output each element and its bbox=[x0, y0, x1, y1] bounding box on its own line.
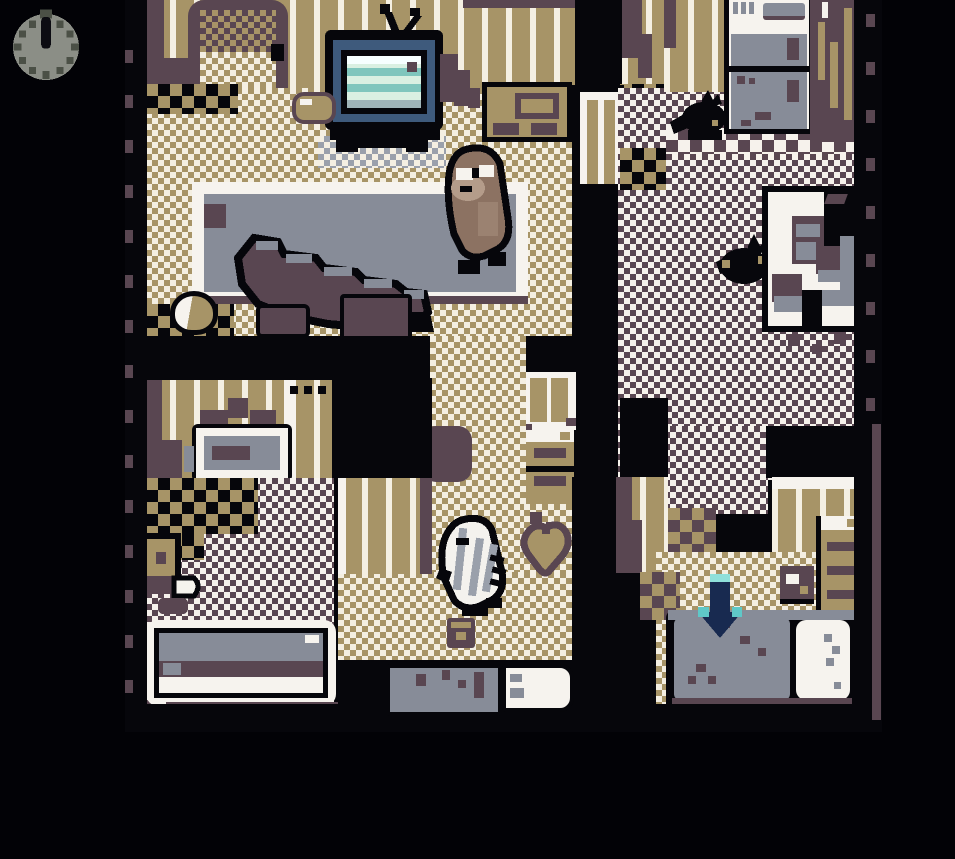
table-item-dark bbox=[802, 290, 822, 326]
right-wall bbox=[854, 0, 882, 732]
clock-indicator-icon bbox=[10, 8, 82, 86]
mat-dab bbox=[510, 688, 524, 698]
heart-cushion bbox=[520, 520, 572, 580]
drawer-handle bbox=[493, 123, 519, 135]
wall-hook-icon bbox=[318, 386, 326, 394]
radio-stripe bbox=[451, 622, 471, 628]
doormat-white bbox=[502, 664, 574, 712]
arrow-marker-icon bbox=[696, 574, 744, 640]
debris bbox=[340, 294, 412, 340]
doorframe-panel bbox=[587, 100, 598, 184]
floor-transition bbox=[146, 84, 238, 114]
fridge-smudge bbox=[749, 78, 755, 84]
book-band bbox=[796, 242, 816, 260]
divider-doorframe bbox=[580, 92, 620, 184]
fridge[interactable] bbox=[724, 0, 814, 134]
black-cat-1[interactable] bbox=[668, 88, 734, 142]
sideboard-panel bbox=[515, 93, 559, 119]
hall-drawers[interactable] bbox=[526, 430, 574, 504]
right-wall-trim bbox=[872, 424, 881, 720]
bed-pillow bbox=[796, 620, 850, 700]
floor-transition bbox=[668, 508, 716, 558]
fridge-top-handle bbox=[763, 3, 805, 20]
fridge-vent bbox=[741, 2, 746, 14]
npc-creature[interactable] bbox=[432, 142, 518, 284]
tub-gleam bbox=[305, 635, 319, 643]
wall-face-shade bbox=[630, 520, 642, 573]
floor-cushion bbox=[292, 92, 336, 124]
window-pane bbox=[530, 378, 547, 422]
mat-dab bbox=[442, 670, 450, 680]
pillow-dot bbox=[826, 658, 834, 666]
wall-stub bbox=[766, 426, 858, 478]
wall-stub bbox=[620, 398, 668, 478]
cushion-highlight bbox=[300, 99, 312, 105]
window-pane bbox=[551, 378, 568, 422]
floor-radio bbox=[447, 618, 475, 648]
door-knob-icon bbox=[271, 44, 284, 61]
hall-window-panel bbox=[524, 372, 576, 430]
floor-dab bbox=[788, 334, 800, 346]
radio-stripe bbox=[456, 632, 466, 640]
box-detail bbox=[786, 574, 799, 584]
wall-shading bbox=[162, 440, 182, 480]
wall-shading-right bbox=[810, 0, 856, 142]
wall-stripe bbox=[822, 2, 828, 18]
wall-stripe bbox=[844, 8, 852, 120]
blanket-dab bbox=[696, 664, 706, 672]
wall-hook-icon bbox=[290, 386, 298, 394]
pillow-dot bbox=[834, 682, 841, 689]
mat-dab bbox=[416, 674, 426, 686]
tub-dab bbox=[163, 663, 181, 675]
pillow-dot bbox=[832, 646, 840, 654]
doorframe-panel bbox=[604, 100, 615, 184]
blanket-dab bbox=[708, 676, 716, 684]
pillow-dot bbox=[824, 634, 832, 642]
wall-stripe bbox=[830, 42, 838, 108]
fridge-vent bbox=[749, 2, 754, 14]
drawer-handle bbox=[534, 476, 566, 486]
fridge-handle bbox=[787, 80, 799, 102]
wall-stripe bbox=[818, 22, 825, 80]
fridge-smudge bbox=[741, 120, 751, 126]
kitchen-table[interactable] bbox=[762, 186, 864, 332]
box-detail bbox=[800, 586, 808, 594]
wall-shading bbox=[664, 0, 676, 48]
sink-vanity[interactable] bbox=[192, 424, 292, 482]
wall-column bbox=[332, 378, 432, 480]
wall-hook-icon bbox=[304, 386, 312, 394]
fridge-handle bbox=[787, 38, 799, 60]
bathtub[interactable] bbox=[146, 620, 336, 706]
mat-dab bbox=[474, 672, 484, 698]
mat-dab bbox=[510, 674, 522, 682]
wall-dab bbox=[407, 62, 417, 72]
drawers-top-dab bbox=[560, 432, 570, 440]
floor-transition bbox=[620, 148, 666, 190]
wall-shading bbox=[638, 34, 652, 78]
tub-water bbox=[159, 633, 323, 661]
blanket-dab bbox=[758, 648, 766, 656]
wall-shading bbox=[463, 0, 576, 8]
drawer-handle bbox=[531, 123, 557, 135]
wall-face-top bbox=[772, 477, 858, 489]
left-wall bbox=[125, 0, 147, 732]
wall-face bbox=[338, 478, 432, 574]
drawer-gap bbox=[526, 466, 574, 472]
player-creature[interactable] bbox=[428, 512, 516, 624]
floor-dab bbox=[812, 344, 822, 354]
left-wall-notches bbox=[125, 50, 133, 720]
doormat-gray bbox=[386, 664, 502, 716]
floor-pot bbox=[170, 291, 218, 335]
fridge-smudge bbox=[737, 76, 745, 84]
front-door[interactable] bbox=[200, 10, 276, 52]
vanity-side bbox=[184, 446, 194, 472]
table-item bbox=[824, 194, 848, 204]
right-wall-notches bbox=[866, 14, 875, 424]
wall-divider-top bbox=[575, 0, 625, 90]
wall-band bbox=[146, 336, 430, 382]
wall-face-frame bbox=[338, 478, 346, 574]
fridge-smudge bbox=[755, 112, 771, 120]
sideboard[interactable] bbox=[482, 82, 572, 142]
book-band bbox=[796, 224, 820, 237]
floor-dab bbox=[834, 332, 846, 344]
tv-wall-shadow bbox=[468, 88, 480, 108]
faucet-icon bbox=[228, 398, 248, 418]
toilet[interactable] bbox=[140, 528, 210, 620]
drawer-handle bbox=[534, 448, 566, 458]
sink-drain bbox=[212, 446, 250, 460]
table-shadow bbox=[204, 204, 226, 228]
corner-dab bbox=[566, 418, 576, 426]
tv-set bbox=[322, 4, 446, 154]
blanket-dab bbox=[688, 676, 696, 684]
tub-inner-wall bbox=[159, 661, 323, 677]
game-viewport[interactable] bbox=[0, 0, 955, 859]
corridor-floor bbox=[664, 426, 768, 514]
fridge-vent bbox=[733, 2, 738, 14]
chair-seat bbox=[820, 290, 854, 306]
wall-shading bbox=[146, 380, 162, 480]
bedside-box[interactable] bbox=[780, 566, 814, 604]
mat-dab bbox=[458, 680, 466, 688]
debris bbox=[256, 304, 310, 338]
floor-transition bbox=[146, 478, 258, 534]
bed[interactable] bbox=[666, 610, 858, 714]
